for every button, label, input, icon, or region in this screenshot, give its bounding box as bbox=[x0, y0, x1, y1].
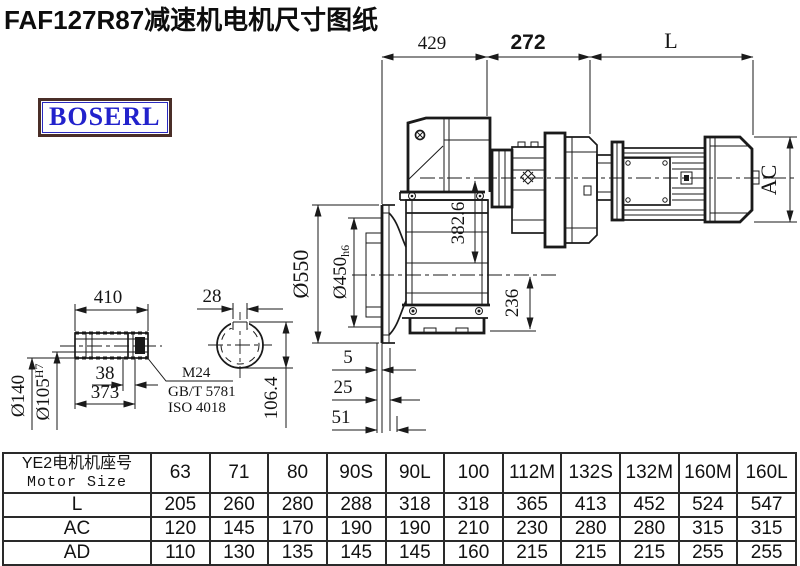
table-cell: 110 bbox=[151, 541, 210, 565]
col-header: 80 bbox=[268, 453, 327, 493]
table-cell: 315 bbox=[737, 517, 796, 541]
table-cell: 145 bbox=[210, 517, 269, 541]
col-header: 63 bbox=[151, 453, 210, 493]
table-cell: 215 bbox=[503, 541, 562, 565]
col-header: 132M bbox=[620, 453, 679, 493]
row-label: L bbox=[3, 493, 151, 517]
bolt-hole-icon bbox=[626, 161, 630, 165]
table-cell: 260 bbox=[210, 493, 269, 517]
table-cell: 288 bbox=[327, 493, 386, 517]
col-header: 90S bbox=[327, 453, 386, 493]
table-cell: 190 bbox=[386, 517, 445, 541]
motor bbox=[612, 137, 759, 222]
dim-236-label: 236 bbox=[502, 289, 523, 318]
bolt-hole-icon bbox=[663, 161, 667, 165]
table-cell: 318 bbox=[444, 493, 503, 517]
table-cell: 318 bbox=[386, 493, 445, 517]
table-cell: 365 bbox=[503, 493, 562, 517]
table-cell: 145 bbox=[386, 541, 445, 565]
dim-450-label: Ø450h6 bbox=[330, 245, 352, 299]
dim-140-label: Ø140 bbox=[8, 375, 29, 417]
dim-550-label: Ø550 bbox=[288, 250, 313, 299]
table-row-AD: AD 110 130 135 145 145 160 215 215 215 2… bbox=[3, 541, 796, 565]
motor-panel bbox=[623, 158, 670, 205]
ac-dimension: AC bbox=[754, 137, 797, 222]
col-header: 90L bbox=[386, 453, 445, 493]
row-label: AC bbox=[3, 517, 151, 541]
table-row-L: L 205 260 280 288 318 318 365 413 452 52… bbox=[3, 493, 796, 517]
dim-AC-label: AC bbox=[756, 165, 781, 196]
table-cell: 230 bbox=[503, 517, 562, 541]
table-cell: 205 bbox=[151, 493, 210, 517]
table-cell: 190 bbox=[327, 517, 386, 541]
table-cell: 215 bbox=[561, 541, 620, 565]
drawing-sheet: FAF127R87减速机电机尺寸图纸 BOSERL 429 272 L bbox=[0, 0, 800, 557]
col-header: 132S bbox=[561, 453, 620, 493]
table-cell: 145 bbox=[327, 541, 386, 565]
gear-unit-r87 bbox=[492, 133, 612, 247]
table-cell: 210 bbox=[444, 517, 503, 541]
std-note-2: ISO 4018 bbox=[168, 400, 226, 416]
dim-429-label: 429 bbox=[418, 33, 447, 54]
fan-cowl bbox=[705, 137, 752, 222]
col-header: 112M bbox=[503, 453, 562, 493]
dim-25-label: 25 bbox=[334, 377, 353, 398]
gearbox-housing bbox=[400, 118, 490, 333]
table-cell: 120 bbox=[151, 517, 210, 541]
bolt-hole-icon bbox=[626, 198, 630, 202]
col-header: 160M bbox=[679, 453, 738, 493]
flange-dimensions: Ø550 Ø450h6 bbox=[288, 205, 382, 343]
table-cell: 135 bbox=[268, 541, 327, 565]
dim-5-label: 5 bbox=[343, 347, 353, 368]
bolt-hole-icon bbox=[663, 198, 667, 202]
dim-L-label: L bbox=[664, 28, 677, 53]
table-cell: 280 bbox=[268, 493, 327, 517]
dim-105-label: Ø105H7 bbox=[32, 364, 54, 421]
table-cell: 280 bbox=[620, 517, 679, 541]
thread-note: M24 bbox=[182, 365, 211, 381]
table-cell: 215 bbox=[620, 541, 679, 565]
table-row-AC: AC 120 145 170 190 190 210 230 280 280 3… bbox=[3, 517, 796, 541]
col-header: 160L bbox=[737, 453, 796, 493]
row-label: AD bbox=[3, 541, 151, 565]
dimension-drawing: 429 272 L bbox=[0, 0, 800, 452]
table-cell: 524 bbox=[679, 493, 738, 517]
header-cn: YE2电机机座号 bbox=[4, 455, 150, 473]
table-cell: 315 bbox=[679, 517, 738, 541]
dim-410-label: 410 bbox=[94, 287, 123, 308]
shaft-detail: 410 38 373 M24 GB/T 5781 ISO 4018 Ø140 Ø… bbox=[8, 287, 236, 430]
table-cell: 160 bbox=[444, 541, 503, 565]
dim-382-label: 382.6 bbox=[448, 202, 469, 245]
table-header-row: YE2电机机座号 Motor Size 63 71 80 90S 90L 100… bbox=[3, 453, 796, 493]
dim-106-label: 106.4 bbox=[261, 376, 282, 419]
table-cell: 255 bbox=[679, 541, 738, 565]
dim-272-label: 272 bbox=[510, 31, 545, 54]
motor-size-header: YE2电机机座号 Motor Size bbox=[3, 453, 151, 493]
dim-28-label: 28 bbox=[203, 286, 222, 307]
output-flange bbox=[366, 205, 406, 343]
table-cell: 255 bbox=[737, 541, 796, 565]
table-cell: 280 bbox=[561, 517, 620, 541]
spigot-dimensions: 5 25 51 bbox=[332, 343, 427, 433]
centerlines bbox=[60, 178, 795, 378]
dim-38-label: 38 bbox=[96, 363, 115, 384]
std-note-1: GB/T 5781 bbox=[168, 384, 236, 400]
dim-51-label: 51 bbox=[332, 407, 351, 428]
dim-373-label: 373 bbox=[91, 382, 120, 403]
table-cell: 452 bbox=[620, 493, 679, 517]
table-cell: 547 bbox=[737, 493, 796, 517]
header-en: Motor Size bbox=[4, 474, 150, 491]
table-cell: 170 bbox=[268, 517, 327, 541]
table-cell: 413 bbox=[561, 493, 620, 517]
col-header: 71 bbox=[210, 453, 269, 493]
table-cell: 130 bbox=[210, 541, 269, 565]
col-header: 100 bbox=[444, 453, 503, 493]
motor-size-table: YE2电机机座号 Motor Size 63 71 80 90S 90L 100… bbox=[2, 452, 797, 566]
